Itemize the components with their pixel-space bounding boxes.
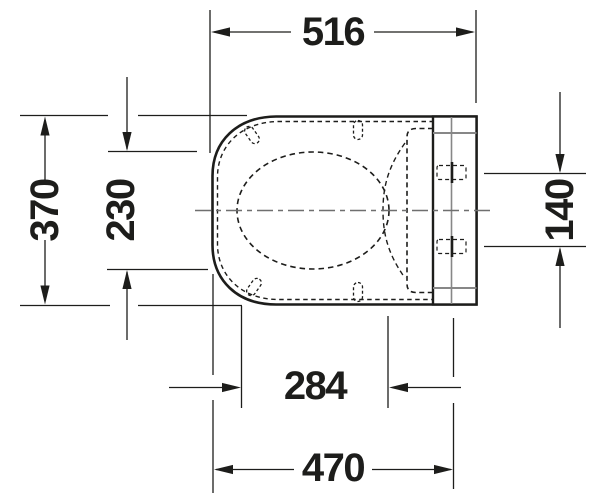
arrowhead-right — [222, 383, 241, 392]
arrowhead-right — [456, 27, 475, 36]
technical-drawing-canvas: 516 370 230 140 — [0, 0, 600, 500]
arrowhead-left — [214, 465, 233, 474]
dim-seat-opening-width: 230 — [99, 77, 208, 340]
arrowhead-up — [555, 247, 564, 266]
dim-front-to-hinge-holes-label: 470 — [302, 446, 364, 490]
dim-overall-width-label: 370 — [23, 179, 67, 241]
arrowhead-left — [211, 27, 230, 36]
dim-overall-depth-label: 516 — [302, 10, 364, 54]
arrowhead-down — [122, 132, 131, 151]
arrowhead-up — [40, 117, 49, 136]
arrowhead-up — [122, 270, 131, 289]
dim-hinge-hole-spacing: 140 — [484, 92, 586, 328]
arrowhead-right — [434, 465, 453, 474]
dim-seat-opening-width-label: 230 — [99, 179, 143, 241]
dim-hinge-hole-spacing-label: 140 — [538, 179, 582, 241]
toilet-seat-dimension-drawing: 516 370 230 140 — [0, 0, 600, 500]
arrowhead-left — [389, 383, 408, 392]
dim-bumper-span-label: 284 — [284, 364, 348, 408]
arrowhead-down — [555, 154, 564, 173]
arrowhead-down — [40, 286, 49, 305]
